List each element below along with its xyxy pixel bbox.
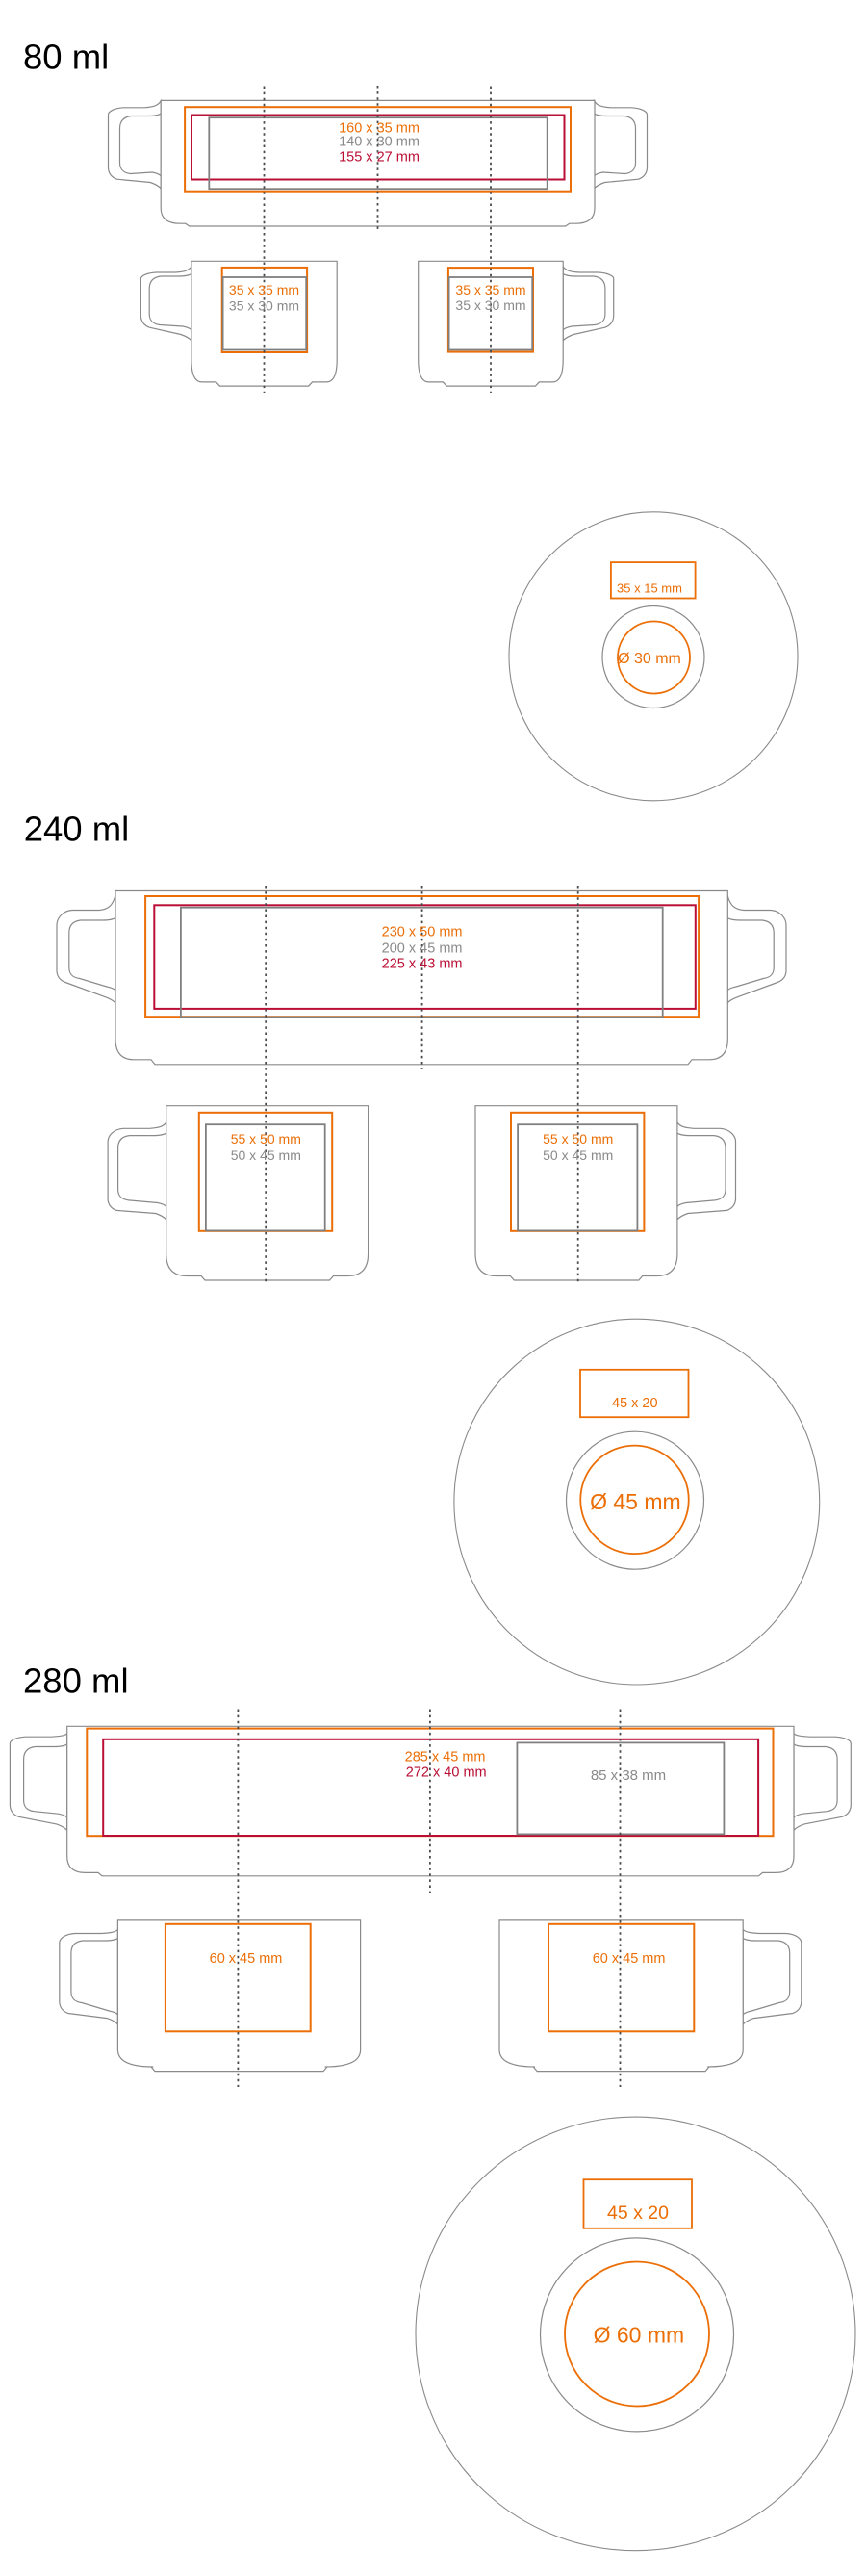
svg-text:140 x 30 mm: 140 x 30 mm — [339, 134, 420, 149]
svg-text:35 x 15 mm: 35 x 15 mm — [617, 581, 682, 596]
svg-text:200 x 45 mm: 200 x 45 mm — [382, 941, 463, 957]
svg-text:35 x 35 mm: 35 x 35 mm — [455, 282, 525, 297]
svg-text:45 x 20: 45 x 20 — [612, 1396, 658, 1411]
svg-text:230 x 50 mm: 230 x 50 mm — [382, 925, 463, 940]
svg-text:60 x 45 mm: 60 x 45 mm — [593, 1951, 666, 1967]
svg-text:55 x 50 mm: 55 x 50 mm — [231, 1131, 301, 1146]
svg-text:280 ml: 280 ml — [23, 1662, 129, 1701]
svg-text:60 x 45 mm: 60 x 45 mm — [210, 1951, 283, 1967]
svg-text:240 ml: 240 ml — [24, 809, 130, 848]
svg-text:45 x 20: 45 x 20 — [607, 2202, 669, 2224]
svg-text:50 x 45 mm: 50 x 45 mm — [543, 1147, 613, 1163]
svg-text:272 x 40 mm: 272 x 40 mm — [406, 1765, 487, 1780]
svg-text:285 x 45 mm: 285 x 45 mm — [405, 1750, 486, 1765]
svg-text:Ø 60 mm: Ø 60 mm — [594, 2323, 685, 2348]
svg-text:225 x 43 mm: 225 x 43 mm — [382, 957, 463, 972]
svg-text:85 x 38 mm: 85 x 38 mm — [591, 1767, 666, 1784]
svg-text:50 x 45 mm: 50 x 45 mm — [231, 1147, 301, 1163]
svg-text:55 x 50 mm: 55 x 50 mm — [543, 1131, 613, 1146]
svg-text:Ø 45 mm: Ø 45 mm — [590, 1489, 681, 1514]
svg-text:35 x 35 mm: 35 x 35 mm — [229, 282, 299, 297]
svg-text:35 x 30 mm: 35 x 30 mm — [229, 298, 299, 314]
svg-text:Ø 30 mm: Ø 30 mm — [618, 651, 681, 667]
svg-text:155 x 27 mm: 155 x 27 mm — [339, 150, 420, 166]
svg-text:35 x 30 mm: 35 x 30 mm — [455, 297, 525, 313]
svg-text:80 ml: 80 ml — [23, 38, 109, 77]
